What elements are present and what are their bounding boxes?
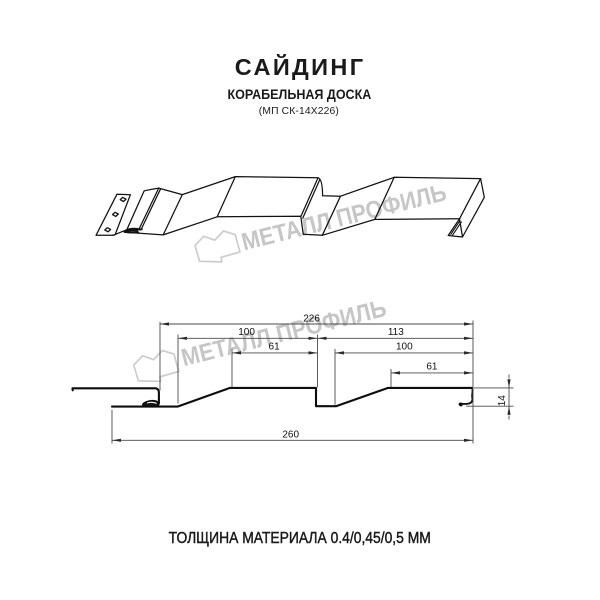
svg-text:МЕТАЛЛ ПРОФИЛЬ: МЕТАЛЛ ПРОФИЛЬ [239, 179, 449, 256]
svg-text:226: 226 [303, 314, 320, 325]
svg-text:260: 260 [282, 430, 299, 441]
svg-text:100: 100 [396, 341, 413, 352]
svg-text:САЙДИНГ: САЙДИНГ [235, 53, 363, 80]
svg-text:113: 113 [388, 327, 404, 338]
svg-text:61: 61 [426, 362, 438, 373]
svg-text:(МП СК-14Х226): (МП СК-14Х226) [259, 106, 339, 117]
svg-text:61: 61 [269, 341, 281, 352]
svg-text:100: 100 [238, 327, 255, 338]
svg-text:КОРАБЕЛЬНАЯ ДОСКА: КОРАБЕЛЬНАЯ ДОСКА [228, 87, 372, 102]
svg-text:14: 14 [497, 395, 508, 407]
svg-text:ТОЛЩИНА МАТЕРИАЛА 0.4/0,45/0,5: ТОЛЩИНА МАТЕРИАЛА 0.4/0,45/0,5 ММ [169, 530, 431, 547]
svg-text:МЕТАЛЛ ПРОФИЛЬ: МЕТАЛЛ ПРОФИЛЬ [179, 295, 389, 372]
